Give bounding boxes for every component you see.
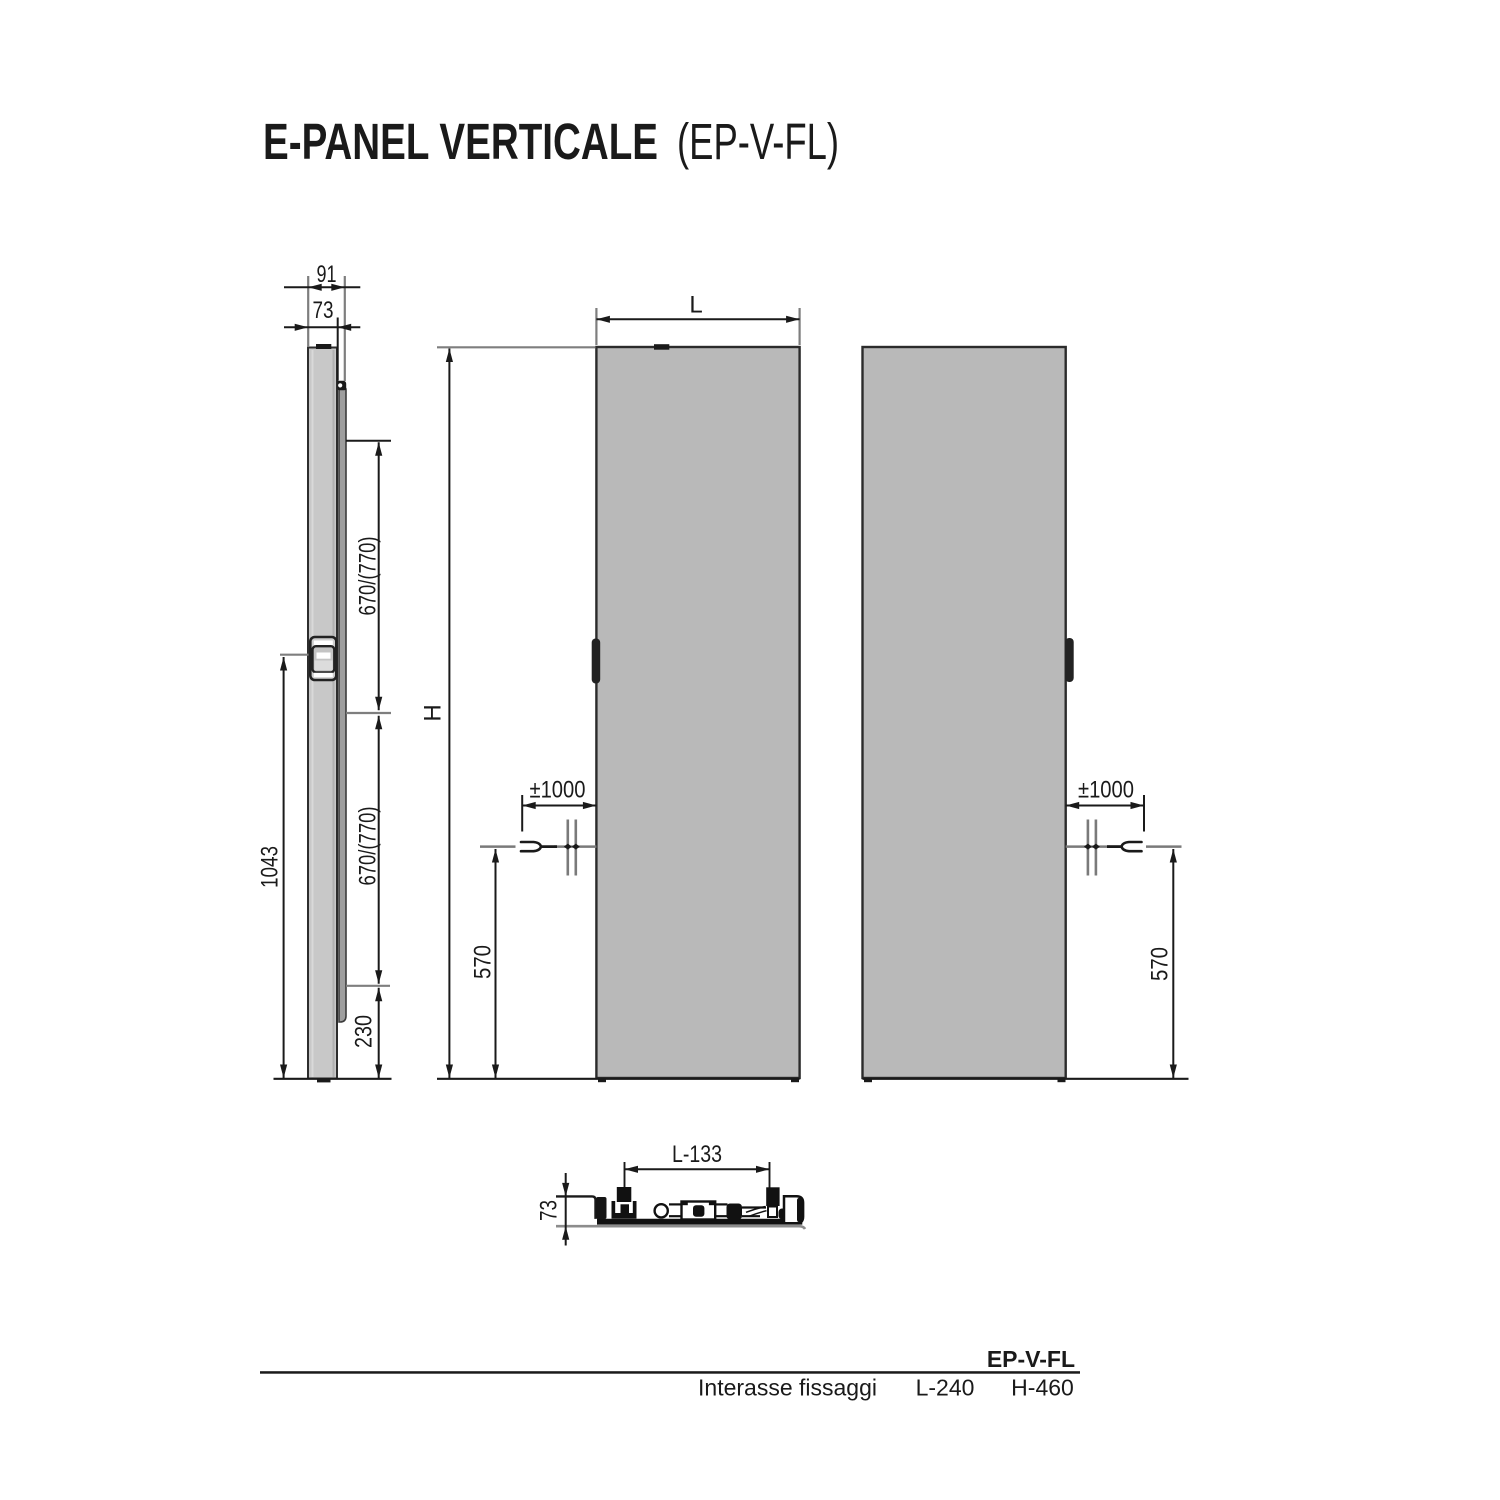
svg-text:L-240: L-240 <box>916 1375 975 1401</box>
svg-text:570: 570 <box>1147 947 1174 981</box>
svg-text:570: 570 <box>470 945 497 979</box>
svg-text:230: 230 <box>351 1015 378 1048</box>
svg-text:±1000: ±1000 <box>1078 777 1134 804</box>
svg-text:E-PANEL VERTICALE: E-PANEL VERTICALE <box>263 113 658 170</box>
svg-text:670/(770): 670/(770) <box>355 807 382 886</box>
svg-text:L-133: L-133 <box>672 1141 722 1168</box>
svg-text:670/(770): 670/(770) <box>355 537 382 616</box>
svg-text:1043: 1043 <box>257 846 284 888</box>
svg-text:EP-V-FL: EP-V-FL <box>987 1346 1075 1372</box>
svg-text:L: L <box>689 292 702 319</box>
svg-text:H: H <box>420 704 447 721</box>
svg-text:±1000: ±1000 <box>530 777 586 804</box>
svg-text:91: 91 <box>317 261 337 288</box>
svg-text:H-460: H-460 <box>1011 1375 1074 1401</box>
svg-text:73: 73 <box>313 297 334 324</box>
svg-text:Interasse fissaggi: Interasse fissaggi <box>698 1375 877 1401</box>
svg-text:(EP-V-FL): (EP-V-FL) <box>677 113 839 170</box>
svg-text:73: 73 <box>536 1200 563 1221</box>
